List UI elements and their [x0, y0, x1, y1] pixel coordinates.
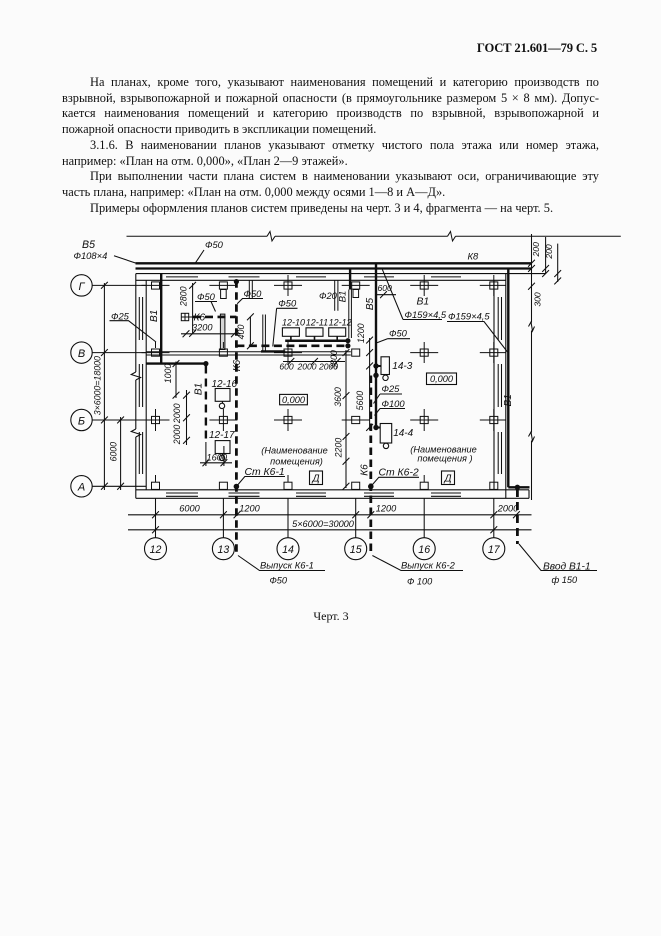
svg-text:помещения): помещения) — [270, 457, 323, 467]
svg-text:15: 15 — [350, 544, 362, 556]
svg-text:14-4: 14-4 — [393, 428, 413, 439]
svg-text:1600: 1600 — [207, 453, 228, 463]
svg-text:помещения ): помещения ) — [417, 454, 472, 464]
svg-text:2000: 2000 — [296, 361, 316, 371]
svg-text:12-16: 12-16 — [212, 379, 238, 390]
svg-text:Ф25: Ф25 — [111, 311, 130, 322]
svg-text:1200: 1200 — [376, 504, 397, 514]
svg-text:3600: 3600 — [333, 387, 343, 407]
svg-text:Б: Б — [78, 415, 85, 427]
svg-text:Ф159×4,5: Ф159×4,5 — [448, 311, 490, 322]
svg-text:3200: 3200 — [192, 323, 213, 333]
svg-text:6000: 6000 — [179, 504, 200, 514]
svg-text:Ф50: Ф50 — [197, 291, 216, 302]
svg-text:А: А — [77, 482, 85, 494]
svg-text:14-3: 14-3 — [392, 361, 412, 372]
svg-text:К6: К6 — [360, 464, 371, 476]
svg-text:Д: Д — [311, 474, 319, 485]
svg-text:2000: 2000 — [497, 504, 519, 514]
svg-text:12-10: 12-10 — [282, 318, 305, 328]
svg-text:Ф50: Ф50 — [389, 328, 408, 339]
svg-text:ф 150: ф 150 — [552, 575, 578, 585]
svg-text:В1: В1 — [338, 291, 349, 303]
svg-text:Ф159×4,5: Ф159×4,5 — [405, 309, 447, 320]
svg-text:Г: Г — [79, 281, 86, 293]
svg-text:В1: В1 — [149, 310, 160, 322]
svg-text:Ст К6-1: Ст К6-1 — [245, 467, 285, 478]
svg-text:200: 200 — [544, 244, 554, 260]
svg-text:300: 300 — [533, 292, 543, 307]
svg-text:Выпуск К6-2: Выпуск К6-2 — [401, 559, 456, 570]
svg-text:600: 600 — [279, 361, 294, 371]
svg-text:Ф25: Ф25 — [382, 383, 401, 394]
svg-text:12-17: 12-17 — [209, 430, 235, 441]
svg-text:Ф100: Ф100 — [382, 398, 406, 409]
svg-text:5600: 5600 — [355, 391, 365, 411]
svg-text:Ф50: Ф50 — [244, 288, 263, 299]
svg-text:3800: 3800 — [329, 350, 339, 370]
svg-text:2200: 2200 — [333, 438, 343, 459]
svg-text:Ввод В1-1: Ввод В1-1 — [543, 561, 591, 572]
svg-text:Ф 100: Ф 100 — [407, 576, 433, 586]
svg-text:В1: В1 — [503, 394, 514, 406]
svg-text:12: 12 — [150, 544, 162, 556]
svg-text:5×6000=30000: 5×6000=30000 — [292, 519, 355, 529]
svg-text:2800: 2800 — [178, 286, 188, 307]
svg-text:1200: 1200 — [239, 504, 260, 514]
svg-text:Ф20: Ф20 — [319, 290, 338, 301]
svg-text:В1: В1 — [417, 297, 430, 308]
svg-text:В: В — [78, 348, 85, 360]
svg-text:Ф108×4: Ф108×4 — [74, 250, 108, 261]
svg-text:(Наименование: (Наименование — [261, 446, 327, 456]
svg-text:2000: 2000 — [172, 425, 182, 446]
svg-text:Ф50: Ф50 — [205, 239, 224, 250]
svg-text:0,000: 0,000 — [282, 395, 306, 405]
svg-text:600: 600 — [378, 283, 393, 293]
svg-text:13: 13 — [218, 544, 230, 556]
svg-text:12-11: 12-11 — [306, 318, 328, 328]
svg-text:К8: К8 — [468, 251, 480, 262]
svg-text:Ф50: Ф50 — [270, 575, 288, 585]
svg-text:Ст К6-2: Ст К6-2 — [379, 468, 419, 479]
svg-text:16: 16 — [418, 544, 430, 556]
svg-text:К6: К6 — [232, 359, 243, 371]
svg-text:400: 400 — [236, 325, 246, 340]
svg-text:3×6000=18000: 3×6000=18000 — [93, 356, 103, 415]
svg-text:В5: В5 — [365, 297, 376, 310]
svg-text:0,000: 0,000 — [430, 374, 454, 384]
svg-text:1200: 1200 — [356, 323, 366, 343]
svg-text:Д: Д — [443, 474, 451, 485]
svg-text:Выпуск К6-1: Выпуск К6-1 — [260, 559, 314, 570]
svg-text:200: 200 — [531, 242, 541, 258]
svg-text:14: 14 — [282, 544, 294, 556]
svg-text:1000: 1000 — [163, 364, 173, 384]
svg-text:12-12: 12-12 — [329, 318, 352, 328]
svg-text:2000: 2000 — [172, 403, 182, 424]
svg-text:17: 17 — [488, 544, 501, 556]
svg-text:6000: 6000 — [108, 442, 118, 462]
svg-text:Ф50: Ф50 — [278, 298, 297, 309]
svg-text:В1: В1 — [194, 383, 205, 395]
